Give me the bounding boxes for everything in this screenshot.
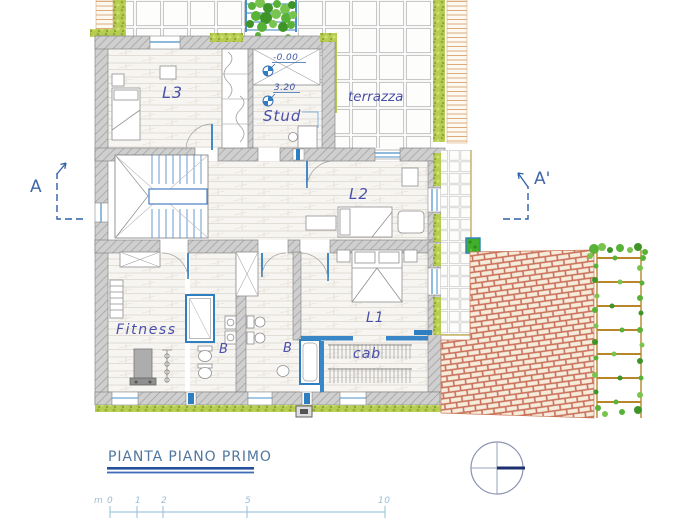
scale-unit: m: [94, 496, 103, 506]
room-label-l3: L3: [162, 83, 183, 102]
window-l1-right: [428, 268, 441, 295]
nightstand-l1-right: [404, 250, 417, 262]
window-left-wall: [95, 203, 108, 222]
desk-stud: [298, 126, 317, 148]
dresser-l3: [160, 66, 176, 79]
toilet-b: [277, 366, 289, 377]
bidet: [198, 364, 212, 379]
window-bottom-2: [248, 392, 272, 405]
scale-tick-1: 1: [135, 496, 141, 506]
floor-plan-drawing: terrazza: [0, 0, 700, 525]
section-a-prime-label: A': [534, 169, 550, 189]
scale-tick-5: 5: [245, 496, 251, 506]
scale-tick-10: 10: [378, 496, 390, 506]
section-marker-a: A: [30, 163, 83, 219]
room-label-stud: Stud: [263, 107, 301, 125]
room-label-bath-b: B: [283, 341, 292, 356]
bed-l1: [352, 250, 402, 302]
cab-partition-vert: [320, 341, 324, 392]
window-bottom-3: [340, 392, 366, 405]
title-block: PIANTA PIANO PRIMO: [107, 449, 272, 473]
closet-fitness: [120, 252, 160, 267]
glass-door-l2: [293, 149, 304, 160]
scale-tick-2: 2: [161, 496, 167, 506]
planter: [466, 238, 480, 253]
room-label-cab: cab: [353, 346, 381, 362]
chair-stud: [289, 133, 298, 142]
vine-pergola: [587, 243, 648, 418]
room-label-bath-a: B: [219, 342, 228, 357]
drawing-title: PIANTA PIANO PRIMO: [108, 449, 272, 465]
dresser-l2: [306, 216, 336, 230]
wall-bars: [110, 280, 123, 318]
door-l1-balcony: [414, 330, 432, 335]
room-label-fitness: Fitness: [116, 322, 177, 338]
terrace-door: [375, 150, 400, 159]
bed-l2: [338, 207, 392, 237]
wardrobe-l3: [222, 49, 248, 148]
cab-partition-right: [386, 336, 428, 341]
door-bottom-1: [186, 392, 196, 405]
window-bottom-1: [112, 392, 138, 405]
armchair-l2: [398, 211, 424, 233]
title-underline-top: [107, 467, 254, 470]
nightstand-l3: [112, 74, 124, 86]
scale-tick-0: 0: [107, 496, 113, 506]
cabinet-l2: [402, 168, 418, 186]
upper-terrace-tiles-left: [126, 0, 245, 36]
closet-column: [236, 252, 258, 296]
level-first-floor-text: 3.20: [274, 83, 296, 93]
room-label-l2: L2: [349, 185, 369, 203]
compass-symbol: [471, 442, 525, 494]
scale-bar: m 0 1 2 5 10: [94, 496, 390, 518]
section-marker-a-prime: A': [503, 169, 550, 219]
pergola-plants: [246, 0, 297, 40]
window-l2-right: [428, 188, 441, 212]
terrazza-label: terrazza: [348, 89, 403, 105]
toilet: [198, 346, 212, 362]
floor-plan-canvas: terrazza: [0, 0, 700, 525]
stair-landing-rail: [149, 189, 207, 204]
staircase: [115, 155, 208, 238]
bathtub: [300, 340, 320, 384]
title-underline-bottom: [107, 472, 254, 474]
utility-box: [296, 406, 312, 417]
shower: [186, 295, 214, 342]
section-a-label: A: [30, 177, 42, 197]
cab-partition-left: [301, 336, 353, 341]
room-label-l1: L1: [366, 310, 385, 326]
nightstand-l1-left: [337, 250, 350, 262]
treadmill: [130, 349, 156, 385]
window-top-wall: [150, 36, 180, 49]
level-entrance-text: -0.00: [273, 53, 298, 63]
door-bottom-2: [302, 392, 312, 405]
